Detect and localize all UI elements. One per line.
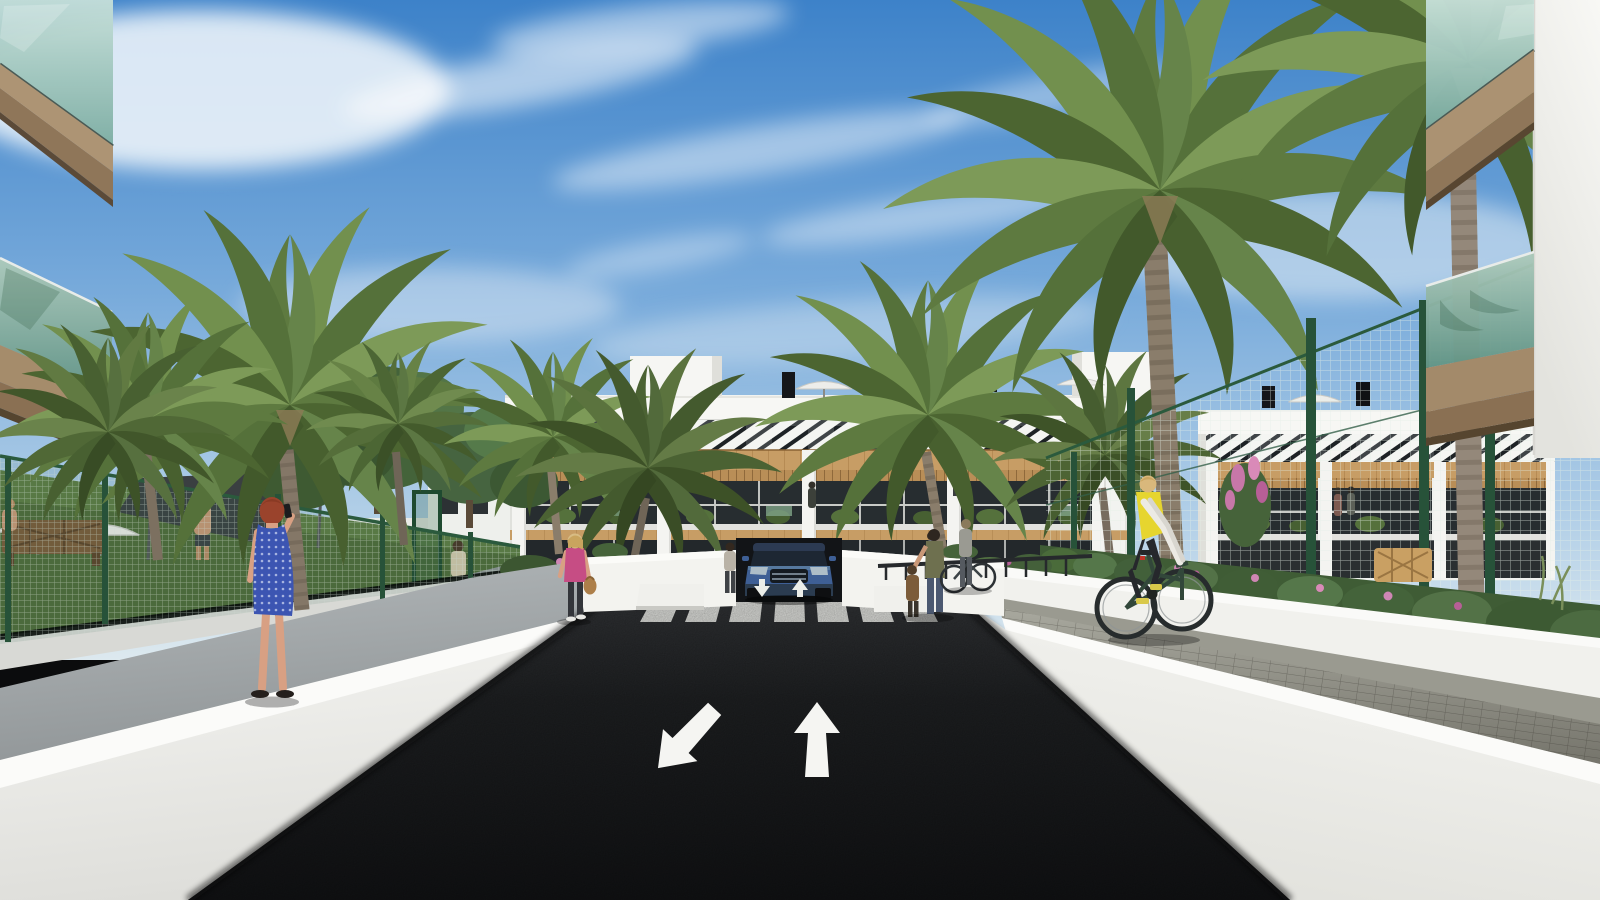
wicker-bench [1374,548,1432,582]
car [742,543,836,605]
render-canvas [0,0,1600,900]
